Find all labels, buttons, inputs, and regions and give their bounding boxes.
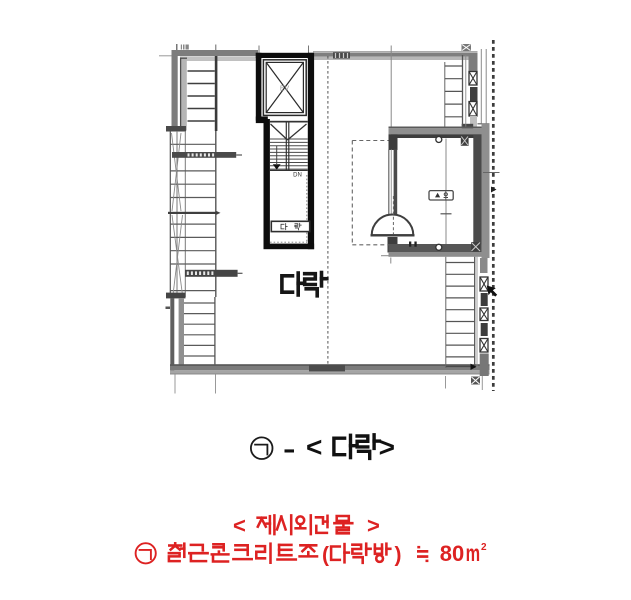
svg-text:<: < (233, 513, 246, 538)
svg-text:>: > (367, 513, 380, 538)
svg-text:EV: EV (280, 86, 290, 93)
svg-text:DN: DN (293, 173, 302, 179)
svg-text:(: ( (322, 544, 329, 567)
svg-text:m: m (466, 540, 481, 566)
svg-text:80: 80 (440, 541, 464, 566)
svg-text:>: > (379, 432, 395, 463)
svg-text:2: 2 (481, 542, 487, 553)
svg-text:<: < (306, 432, 322, 463)
svg-text:): ) (395, 544, 402, 567)
